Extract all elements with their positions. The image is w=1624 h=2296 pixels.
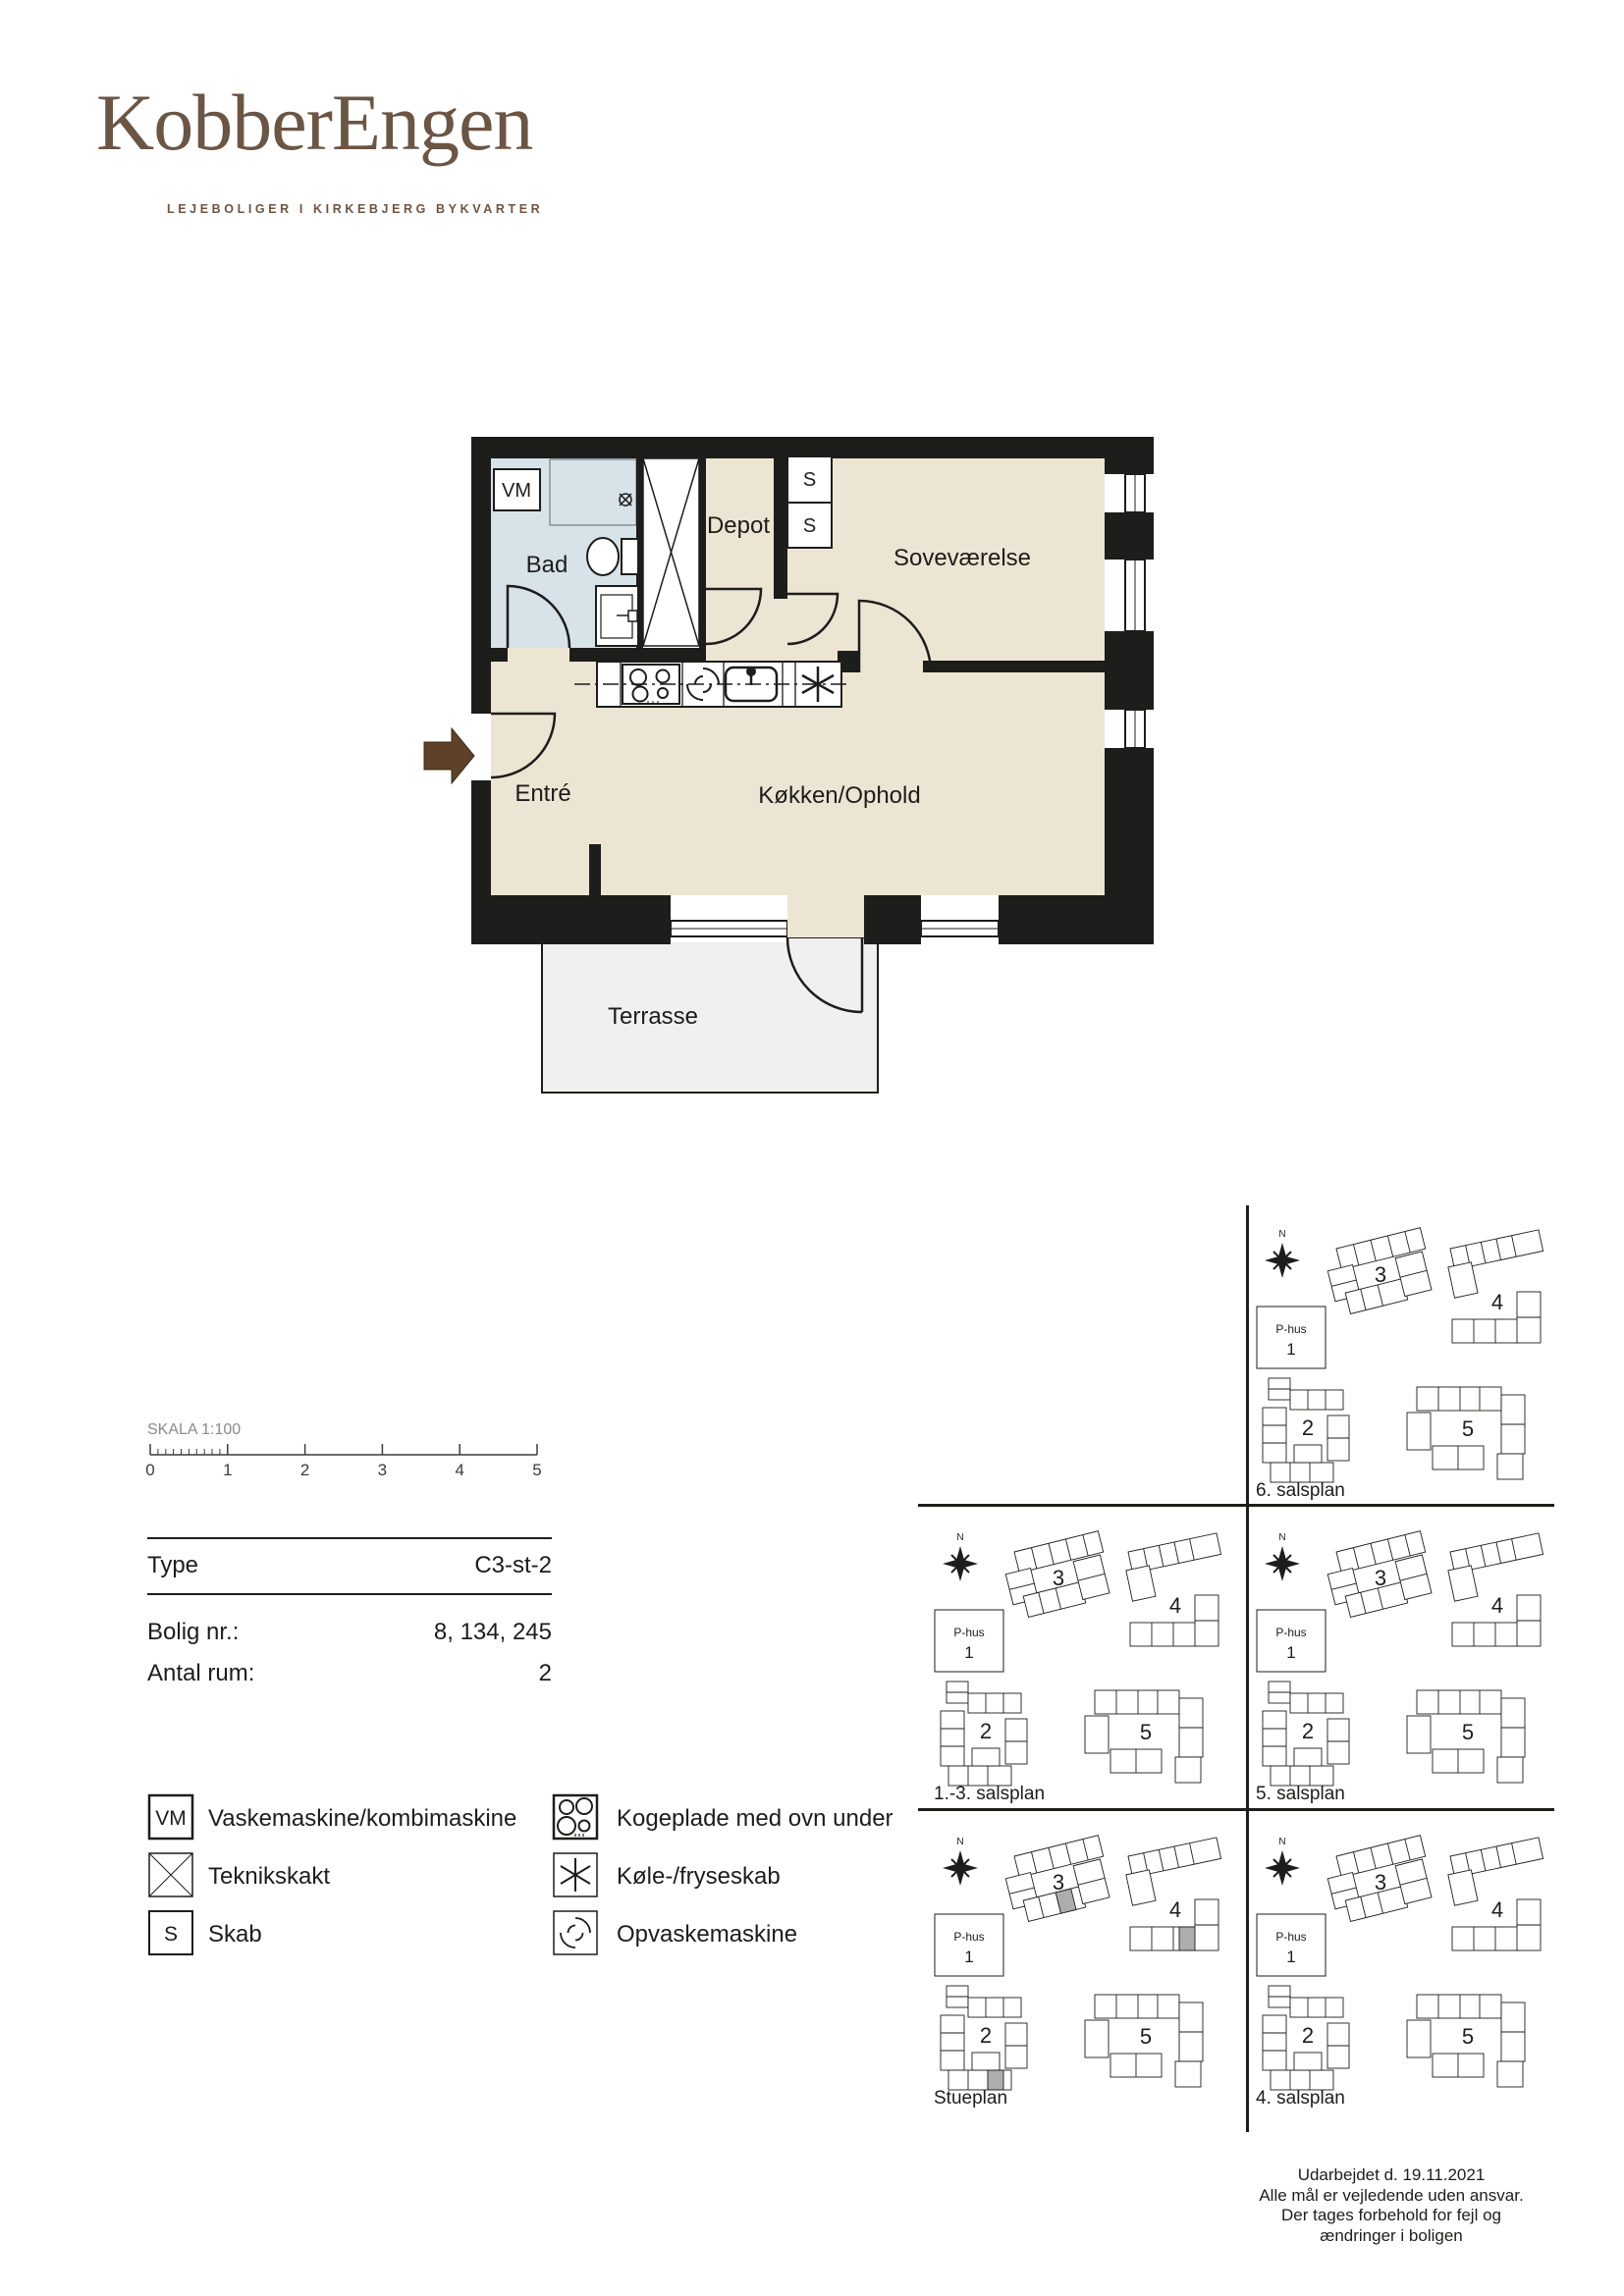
scale-tick-3: 3 [378,1461,387,1479]
svg-text:1: 1 [1286,1948,1295,1966]
footer-line: Der tages forbehold for fejl og [1259,2206,1523,2226]
building-2: 2 [1263,1378,1349,1482]
parking-house: P-hus 1 [1257,1307,1326,1368]
cabinet-icon: S [147,1909,194,1956]
building-4: 4 [1444,1533,1548,1646]
building-3: 3 [1001,1531,1113,1621]
svg-text:3: 3 [1375,1566,1386,1590]
svg-text:P-hus: P-hus [1275,1322,1306,1336]
legend-label: Køle-/fryseskab [617,1863,781,1891]
siteplan-map: N 3 [1250,1513,1556,1807]
scale-tick-5: 5 [532,1461,541,1479]
svg-text:S: S [164,1923,178,1946]
legend-label: Kogeplade med ovn under [617,1805,893,1833]
floorplan-sheet: KobberEngen LEJEBOLIGER I KIRKEBJERG BYK… [0,0,1624,2296]
terrace-area [542,937,878,1093]
toilet-icon [587,538,638,575]
table-row: Type C3-st-2 [147,1539,552,1593]
svg-text:N: N [1278,1229,1285,1240]
apartment-floorplan: VM Bad Depot S S Soveværelse Entré Køkke… [417,432,1159,1099]
building-3: 3 [1001,1836,1113,1925]
row-value: 2 [539,1660,552,1687]
vm-box-icon: VM [147,1793,194,1841]
siteplan-panel: N 3 [1250,1513,1556,1807]
svg-text:3: 3 [1375,1262,1386,1287]
scale-ruler: 0 1 2 3 4 5 [145,1443,558,1497]
svg-text:3: 3 [1375,1870,1386,1895]
siteplan-label: 6. salsplan [1256,1480,1345,1501]
grid-divider-horizontal [918,1504,1554,1507]
compass-north-icon: N [943,1532,978,1581]
unit-info-table: Type C3-st-2 Bolig nr.: 8, 134, 245 Anta… [147,1537,552,1687]
building-3: 3 [1323,1836,1435,1925]
footer-line: Udarbejdet d. 19.11.2021 [1259,2165,1523,2186]
building-5: 5 [1407,1690,1525,1783]
room-label-bath: Bad [526,552,568,578]
legend-label: Vaskemaskine/kombimaskine [208,1805,516,1833]
building-4: 4 [1122,1533,1226,1646]
building-5: 5 [1085,1690,1203,1783]
scale-tick-1: 1 [223,1461,232,1479]
svg-text:4: 4 [1491,1593,1503,1618]
footer-disclaimer: Udarbejdet d. 19.11.2021 Alle mål er vej… [1259,2165,1523,2246]
room-label-terrace: Terrasse [608,1003,698,1030]
row-label: Type [147,1552,198,1579]
dishwasher-icon [552,1909,599,1956]
svg-text:1: 1 [1286,1643,1295,1662]
terrace-door-opening [787,895,864,937]
brand-tagline: LEJEBOLIGER I KIRKEBJERG BYKVARTER [167,202,543,216]
svg-text:2: 2 [1302,2023,1314,2048]
svg-text:2: 2 [980,2023,992,2048]
building-2: 2 [1263,1682,1349,1786]
svg-text:N: N [1278,1532,1285,1543]
svg-text:5: 5 [1140,1720,1152,1744]
row-value: 8, 134, 245 [434,1619,552,1646]
svg-text:N: N [1278,1837,1285,1847]
building-3: 3 [1323,1228,1435,1317]
svg-text:P-hus: P-hus [1275,1626,1306,1639]
scale-title: SKALA 1:100 [147,1421,241,1439]
svg-text:1: 1 [964,1643,973,1662]
compass-north-icon: N [943,1837,978,1886]
svg-text:5: 5 [1140,2024,1152,2049]
svg-text:5: 5 [1462,1416,1474,1441]
legend-label: Skab [208,1921,262,1949]
compass-north-icon: N [1265,1229,1300,1278]
scale-tick-0: 0 [145,1461,154,1479]
svg-text:P-hus: P-hus [953,1930,984,1944]
scale-tick-2: 2 [300,1461,309,1479]
svg-text:P-hus: P-hus [953,1626,984,1639]
building-2: 2 [941,1682,1027,1786]
svg-text:4: 4 [1169,1897,1181,1922]
compass-north-icon: N [1265,1837,1300,1886]
scale-tick-4: 4 [455,1461,463,1479]
legend-label: Teknikskakt [208,1863,330,1891]
siteplan-label: Stueplan [934,2088,1007,2109]
svg-text:N: N [956,1532,963,1543]
siteplan-map: N 3 [1250,1817,1556,2111]
siteplan-panel: N 3 [1250,1209,1556,1504]
cabinet-label-1: S [803,469,816,491]
building-4: 4 [1444,1838,1548,1950]
entrance-arrow-icon [424,728,474,783]
footer-line: ændringer i boligen [1259,2226,1523,2247]
cabinet-label-2: S [803,515,816,537]
parking-house: P-hus 1 [935,1610,1003,1672]
brand-logo: KobberEngen [96,77,532,169]
grid-divider-horizontal [918,1808,1554,1811]
svg-text:2: 2 [1302,1415,1314,1440]
svg-text:VM: VM [155,1807,187,1830]
row-label: Bolig nr.: [147,1619,239,1646]
siteplan-map: N 3 [1250,1209,1556,1504]
room-label-entry: Entré [514,780,570,807]
parking-house: P-hus 1 [935,1914,1003,1976]
svg-text:3: 3 [1053,1566,1064,1590]
bath-sink-icon [596,586,638,646]
siteplan-panel: N 3 [928,1513,1234,1807]
shower-zone [550,459,636,525]
row-label: Antal rum: [147,1660,254,1687]
building-5: 5 [1407,1387,1525,1479]
parking-house: P-hus 1 [1257,1914,1326,1976]
svg-text:5: 5 [1462,2024,1474,2049]
building-5: 5 [1407,1995,1525,2087]
svg-text:5: 5 [1462,1720,1474,1744]
table-row: Bolig nr.: 8, 134, 245 [147,1595,552,1652]
footer-line: Alle mål er vejledende uden ansvar. [1259,2186,1523,2207]
siteplan-panel: N 3 [928,1817,1234,2111]
svg-text:4: 4 [1169,1593,1181,1618]
grid-divider-vertical [1246,1205,1249,2132]
legend-label: Opvaskemaskine [617,1921,797,1949]
fridge-freezer-icon [552,1851,599,1898]
building-2: 2 [941,1986,1027,2090]
siteplan-map: N 3 [928,1513,1234,1807]
building-4: 4 [1122,1838,1226,1950]
building-3: 3 [1323,1531,1435,1621]
siteplan-label: 1.-3. salsplan [934,1784,1045,1804]
room-label-bedroom: Soveværelse [893,545,1031,571]
room-label-kitchen: Køkken/Ophold [758,782,920,809]
siteplan-panel: N 3 [1250,1817,1556,2111]
svg-text:4: 4 [1491,1290,1503,1314]
svg-text:2: 2 [980,1719,992,1743]
svg-text:2: 2 [1302,1719,1314,1743]
svg-text:4: 4 [1491,1897,1503,1922]
room-label-vm: VM [502,480,531,502]
svg-text:1: 1 [1286,1340,1295,1359]
building-4: 4 [1444,1230,1548,1343]
svg-text:1: 1 [964,1948,973,1966]
parking-house: P-hus 1 [1257,1610,1326,1672]
siteplan-label: 5. salsplan [1256,1784,1345,1804]
building-2: 2 [1263,1986,1349,2090]
svg-text:P-hus: P-hus [1275,1930,1306,1944]
technical-shaft-icon [643,458,699,646]
siteplan-label: 4. salsplan [1256,2088,1345,2109]
table-row: Antal rum: 2 [147,1652,552,1687]
kitchen-counter [574,662,846,707]
room-label-depot: Depot [707,512,770,539]
siteplan-map: N 3 [928,1817,1234,2111]
svg-text:N: N [956,1837,963,1847]
svg-text:3: 3 [1053,1870,1064,1895]
cooktop-icon [552,1793,599,1841]
compass-north-icon: N [1265,1532,1300,1581]
row-value: C3-st-2 [474,1552,552,1579]
technical-shaft-icon [147,1851,194,1898]
building-5: 5 [1085,1995,1203,2087]
